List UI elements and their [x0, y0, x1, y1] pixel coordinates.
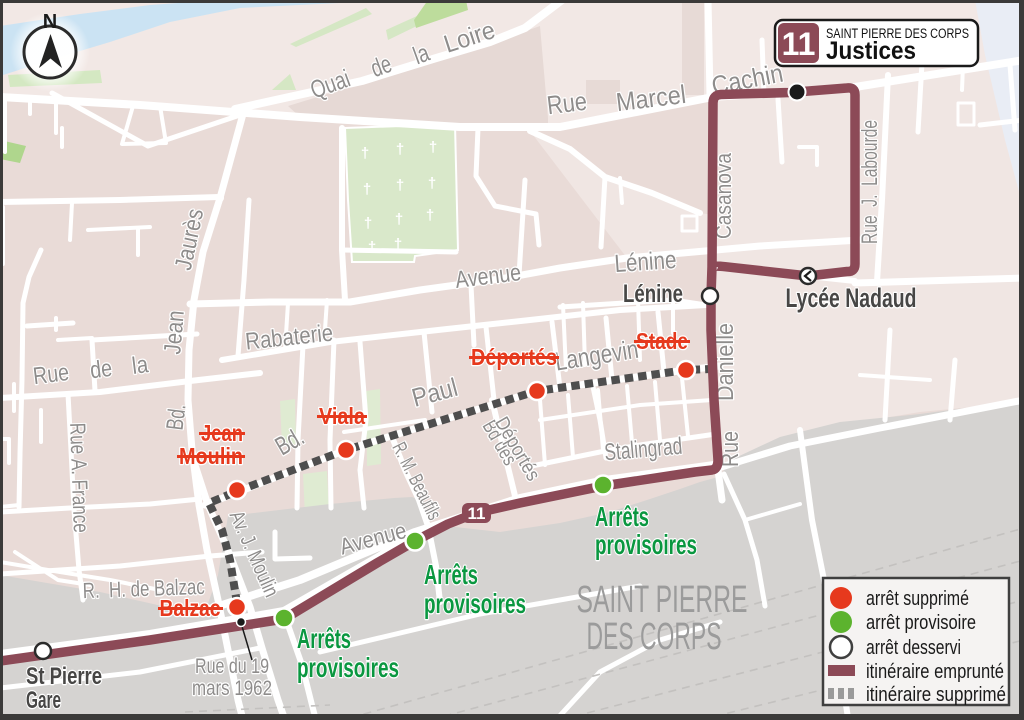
svg-text:Arrêts: Arrêts — [297, 623, 351, 654]
svg-text:Rue J. Labourde: Rue J. Labourde — [857, 120, 882, 244]
svg-text:11: 11 — [468, 504, 486, 523]
svg-text:Rue: Rue — [545, 86, 588, 121]
svg-text:provisoires: provisoires — [424, 588, 526, 619]
svg-text:Arrêts: Arrêts — [595, 501, 649, 532]
svg-text:SAINT PIERRE: SAINT PIERRE — [577, 579, 748, 621]
svg-text:St Pierre: St Pierre — [26, 663, 102, 690]
svg-text:Justices: Justices — [826, 37, 916, 65]
svg-text:Bd.: Bd. — [162, 403, 192, 432]
svg-text:arrêt supprimé: arrêt supprimé — [866, 588, 969, 610]
svg-text:†: † — [429, 139, 437, 156]
svg-text:Gare: Gare — [26, 687, 61, 714]
svg-text:N: N — [43, 11, 57, 33]
svg-text:†: † — [395, 211, 403, 228]
svg-text:†: † — [396, 177, 404, 194]
svg-text:arrêt provisoire: arrêt provisoire — [866, 612, 976, 634]
svg-text:†: † — [428, 175, 436, 192]
svg-text:Arrêts: Arrêts — [424, 559, 478, 590]
svg-text:Rue: Rue — [32, 359, 71, 390]
svg-text:Rue du 19: Rue du 19 — [195, 655, 269, 678]
svg-text:DES CORPS: DES CORPS — [587, 616, 722, 658]
svg-text:†: † — [426, 207, 434, 224]
svg-text:provisoires: provisoires — [297, 652, 399, 683]
svg-text:†: † — [368, 239, 376, 256]
svg-text:†: † — [364, 215, 372, 232]
svg-text:Rue A. France: Rue A. France — [65, 422, 94, 533]
svg-text:†: † — [361, 145, 369, 162]
svg-text:mars 1962: mars 1962 — [192, 677, 272, 700]
svg-text:11: 11 — [782, 26, 816, 62]
svg-text:de: de — [89, 355, 114, 384]
svg-text:provisoires: provisoires — [595, 529, 697, 560]
svg-text:Lénine: Lénine — [623, 280, 683, 308]
svg-text:itinéraire emprunté: itinéraire emprunté — [866, 661, 1004, 683]
svg-text:itinéraire supprimé: itinéraire supprimé — [866, 684, 1006, 706]
svg-text:Lycée Nadaud: Lycée Nadaud — [786, 283, 917, 313]
svg-text:arrêt desservi: arrêt desservi — [866, 637, 961, 659]
svg-text:Jean: Jean — [159, 309, 190, 355]
svg-text:†: † — [396, 141, 404, 158]
svg-text:†: † — [363, 181, 371, 198]
svg-text:Lénine: Lénine — [614, 246, 678, 278]
